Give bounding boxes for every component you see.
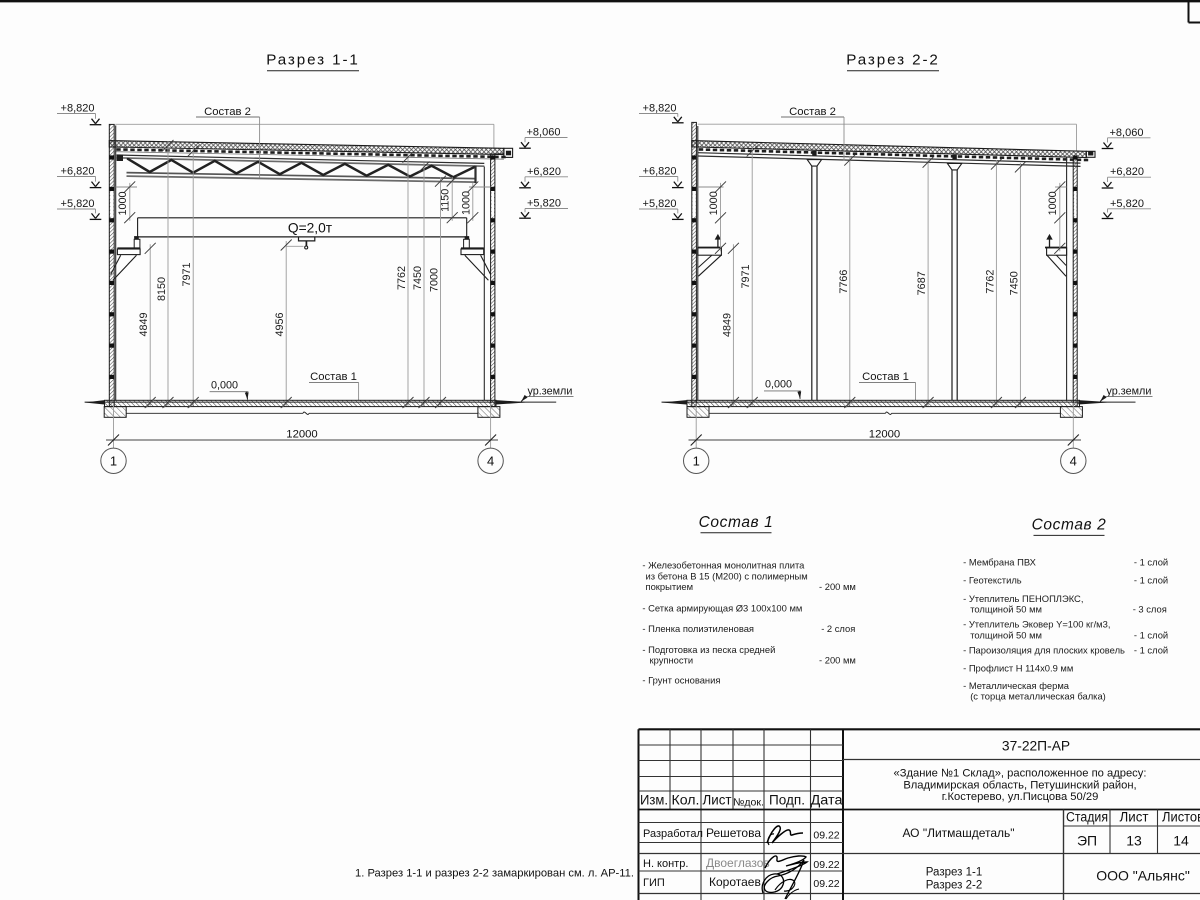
svg-text:+8,060: +8,060 (1110, 127, 1144, 139)
svg-text:7766: 7766 (838, 270, 850, 294)
svg-text:ГИП: ГИП (643, 877, 665, 889)
svg-text:7450: 7450 (1008, 271, 1020, 295)
svg-text:Состав 1: Состав 1 (862, 371, 909, 383)
svg-text:Дата: Дата (811, 793, 844, 808)
svg-text:Состав 2: Состав 2 (1032, 517, 1107, 534)
svg-text:- Металлическая ферма: - Металлическая ферма (963, 680, 1070, 691)
svg-text:7450: 7450 (412, 266, 424, 290)
svg-text:- Железобетонная монолитная п: - Железобетонная монолитная плита (642, 560, 805, 571)
svg-text:Разрез 1-1: Разрез 1-1 (926, 867, 982, 879)
svg-text:- 1 слой: - 1 слой (1134, 557, 1168, 568)
svg-text:Лист: Лист (1120, 809, 1149, 824)
svg-text:1: 1 (693, 454, 700, 469)
svg-text:- Сетка армирующая Ø3 100х100: - Сетка армирующая Ø3 100х100 мм (642, 602, 802, 613)
svg-text:ур.земли: ур.земли (1107, 386, 1152, 398)
svg-text:Состав 2: Состав 2 (204, 106, 251, 118)
svg-text:+5,820: +5,820 (1110, 198, 1144, 210)
svg-text:1000: 1000 (117, 191, 129, 215)
svg-text:- 200 мм: - 200 мм (819, 581, 856, 592)
svg-text:толщиной 50 мм: толщиной 50 мм (970, 604, 1042, 615)
svg-text:г.Костерево, ул.Писцова 50/29: г.Костерево, ул.Писцова 50/29 (942, 791, 1099, 803)
svg-text:12000: 12000 (286, 428, 317, 440)
svg-text:- Пароизоляция для плоских кро: - Пароизоляция для плоских кровель (963, 644, 1125, 655)
svg-text:Q=2,0т: Q=2,0т (288, 221, 333, 236)
svg-text:1. Разрез 1-1 и разрез 2-2 зам: 1. Разрез 1-1 и разрез 2-2 замаркирован … (355, 868, 634, 880)
svg-text:7762: 7762 (396, 266, 408, 290)
svg-text:1: 1 (110, 454, 117, 469)
svg-text:ЭП: ЭП (1077, 833, 1097, 849)
svg-text:- Мембрана ПВХ: - Мембрана ПВХ (963, 557, 1037, 568)
svg-text:+5,820: +5,820 (527, 198, 561, 210)
svg-text:4: 4 (1070, 454, 1077, 469)
svg-text:Состав 1: Состав 1 (699, 514, 774, 531)
svg-text:09.22: 09.22 (813, 859, 839, 871)
svg-text:- 2 слоя: - 2 слоя (821, 623, 855, 634)
svg-text:- 1 слой: - 1 слой (1134, 644, 1168, 655)
svg-text:Листов: Листов (1162, 809, 1200, 824)
svg-text:09.22: 09.22 (813, 878, 839, 890)
svg-text:Кол.: Кол. (672, 793, 700, 808)
svg-text:Разрез 2-2: Разрез 2-2 (926, 879, 982, 891)
svg-text:4956: 4956 (274, 312, 286, 336)
svg-text:Изм.: Изм. (640, 793, 668, 808)
svg-text:«Здание №1 Склад», расположенн: «Здание №1 Склад», расположенное по адре… (894, 768, 1147, 780)
svg-text:7000: 7000 (429, 268, 441, 292)
svg-text:Коротаев: Коротаев (709, 875, 761, 889)
svg-text:Двоеглазов: Двоеглазов (706, 856, 770, 870)
svg-text:Лист: Лист (703, 793, 732, 808)
svg-text:Решетова: Решетова (706, 826, 761, 840)
svg-text:+8,820: +8,820 (61, 103, 95, 115)
svg-text:крупности: крупности (650, 654, 694, 665)
svg-text:0,000: 0,000 (765, 379, 792, 391)
svg-text:Состав 1: Состав 1 (310, 371, 357, 383)
svg-text:Подп.: Подп. (769, 793, 805, 808)
svg-text:+8,060: +8,060 (527, 127, 561, 139)
svg-text:- Утеплитель Эковер Y=100 кг/м: - Утеплитель Эковер Y=100 кг/м3, (963, 619, 1110, 630)
svg-text:- Геотекстиль: - Геотекстиль (963, 575, 1022, 586)
svg-text:ООО "Альянс": ООО "Альянс" (1096, 868, 1190, 884)
svg-text:Стадия: Стадия (1066, 809, 1108, 824)
svg-text:- Пленка полиэтиленовая: - Пленка полиэтиленовая (642, 623, 754, 634)
svg-text:Разрез 1-1: Разрез 1-1 (266, 52, 360, 69)
svg-text:- 200 мм: - 200 мм (819, 654, 856, 665)
svg-text:АО "Литмашдеталь": АО "Литмашдеталь" (902, 826, 1014, 840)
svg-text:1000: 1000 (708, 191, 720, 215)
svg-text:13: 13 (1126, 833, 1142, 849)
svg-text:7971: 7971 (740, 264, 752, 288)
svg-text:1000: 1000 (460, 191, 472, 215)
svg-text:7762: 7762 (984, 270, 996, 294)
svg-text:ур.земли: ур.земли (528, 386, 573, 398)
svg-text:(с торца металлическая балка): (с торца металлическая балка) (970, 691, 1106, 702)
svg-text:+5,820: +5,820 (643, 198, 677, 210)
svg-text:8150: 8150 (156, 277, 168, 301)
svg-text:- Грунт основания: - Грунт основания (642, 675, 720, 686)
svg-text:+5,820: +5,820 (61, 198, 95, 210)
svg-text:- 3 слоя: - 3 слоя (1133, 604, 1167, 615)
svg-text:12000: 12000 (869, 428, 900, 440)
svg-text:покрытием: покрытием (646, 581, 694, 592)
svg-text:Разработал: Разработал (643, 828, 703, 840)
svg-text:+8,820: +8,820 (643, 103, 677, 115)
svg-text:0,000: 0,000 (211, 380, 238, 392)
svg-text:- Подготовка из песка средней: - Подготовка из песка средней (642, 644, 775, 655)
svg-text:Разрез 2-2: Разрез 2-2 (846, 52, 940, 69)
svg-text:+6,820: +6,820 (1110, 166, 1144, 178)
svg-text:7971: 7971 (181, 262, 193, 286)
svg-text:- Утеплитель ПЕНОПЛЭКС,: - Утеплитель ПЕНОПЛЭКС, (963, 593, 1083, 604)
svg-text:Состав 2: Состав 2 (789, 106, 836, 118)
svg-text:14: 14 (1173, 833, 1189, 849)
svg-text:№док.: №док. (733, 797, 764, 809)
svg-text:1000: 1000 (1047, 191, 1059, 215)
svg-text:7687: 7687 (916, 271, 928, 295)
svg-text:4849: 4849 (721, 313, 733, 337)
svg-text:толщиной 50 мм: толщиной 50 мм (970, 629, 1042, 640)
svg-text:Владимирская область, Петушинс: Владимирская область, Петушинский район, (903, 779, 1136, 791)
svg-text:37-22П-АР: 37-22П-АР (1002, 739, 1070, 754)
svg-text:1150: 1150 (440, 189, 452, 212)
svg-text:- 1 слой: - 1 слой (1134, 575, 1168, 586)
svg-text:- Профлист Н 114х0.9 мм: - Профлист Н 114х0.9 мм (963, 663, 1073, 674)
svg-text:- 1 слой: - 1 слой (1134, 629, 1168, 640)
svg-text:4: 4 (487, 454, 494, 469)
svg-text:из бетона В 15 (М200) с полиме: из бетона В 15 (М200) с полимерным (646, 570, 808, 581)
svg-text:+6,820: +6,820 (643, 166, 677, 178)
svg-text:+6,820: +6,820 (527, 166, 561, 178)
svg-text:+6,820: +6,820 (61, 166, 95, 178)
svg-text:4849: 4849 (138, 312, 150, 336)
svg-text:09.22: 09.22 (813, 830, 839, 842)
svg-text:Н. контр.: Н. контр. (643, 858, 688, 870)
